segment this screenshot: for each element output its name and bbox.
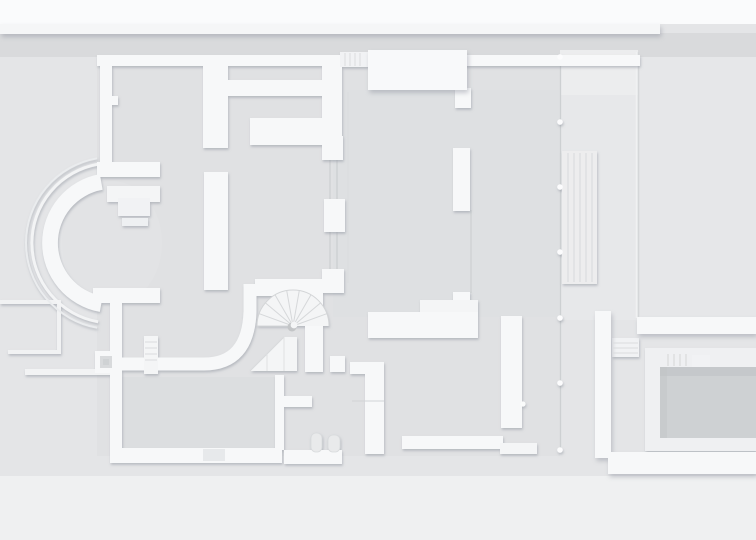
bay-podium-step-2 xyxy=(118,198,150,216)
spiral-newel-highlight xyxy=(291,322,298,329)
partition-wall-501 xyxy=(501,316,522,428)
wc-top-wall xyxy=(283,396,312,407)
door-threshold-inset xyxy=(203,449,225,461)
site-boundary-wall xyxy=(0,24,660,34)
colonnade-column-1 xyxy=(557,54,563,60)
east-room-wall xyxy=(365,362,384,454)
colonnade-column-3 xyxy=(557,184,563,190)
wc-fixture-2 xyxy=(328,435,340,452)
bench-low-wall xyxy=(402,436,503,449)
floor-plan-stage xyxy=(0,0,756,540)
closet-bar-wall xyxy=(250,118,323,145)
right-ground xyxy=(640,57,756,317)
door-post-dot xyxy=(520,401,525,406)
mid-wall xyxy=(453,148,470,211)
bottom-room-floor xyxy=(122,377,275,448)
left-exterior-wall-lower xyxy=(110,300,122,455)
entry-steps xyxy=(340,52,368,67)
hall-floor xyxy=(333,90,560,317)
corridor-wall xyxy=(225,80,333,96)
sunken-court-floor xyxy=(660,367,756,438)
spiral-platform-foot xyxy=(330,356,345,372)
colonnade-column-7 xyxy=(557,447,563,453)
colonnade-column-2 xyxy=(557,119,563,125)
annex-left-wall xyxy=(595,311,611,458)
bottom-light-strip xyxy=(0,476,756,540)
wc-partition-wall xyxy=(275,375,284,450)
court-inner-shadow-left xyxy=(660,367,667,438)
bench-wall-main xyxy=(368,312,478,338)
left-wall-stub xyxy=(100,96,118,105)
bottom-wall-left xyxy=(110,448,282,463)
top-light-strip xyxy=(0,0,756,24)
floor-plan-canvas xyxy=(0,0,756,540)
glazing-pier-b xyxy=(324,199,345,232)
wc-fixture-1 xyxy=(311,433,322,452)
chimney-core-inner xyxy=(103,359,109,365)
wc-corner-stub xyxy=(350,362,366,374)
bay-bottom-connector-wall xyxy=(93,288,160,303)
colonnade-column-6 xyxy=(557,380,563,386)
bench-low-ext xyxy=(500,443,537,454)
long-pier-wall xyxy=(204,172,228,290)
colonnade-column-5 xyxy=(557,315,563,321)
court-inner-shadow-top xyxy=(660,367,756,376)
glazing-pier-a xyxy=(322,136,343,160)
entry-block-leg xyxy=(455,88,471,108)
glazing-pier-c xyxy=(322,269,344,293)
left-exterior-wall-upper xyxy=(100,55,112,167)
bay-podium-step-3 xyxy=(122,218,148,226)
annex-top-wall xyxy=(637,317,756,334)
entry-volume-block xyxy=(368,50,467,90)
colonnade-column-4 xyxy=(557,249,563,255)
annex-bottom-wall xyxy=(608,452,756,474)
court-step-block xyxy=(692,355,710,368)
t-partition-wall xyxy=(203,63,228,148)
plan-layers xyxy=(0,0,756,540)
